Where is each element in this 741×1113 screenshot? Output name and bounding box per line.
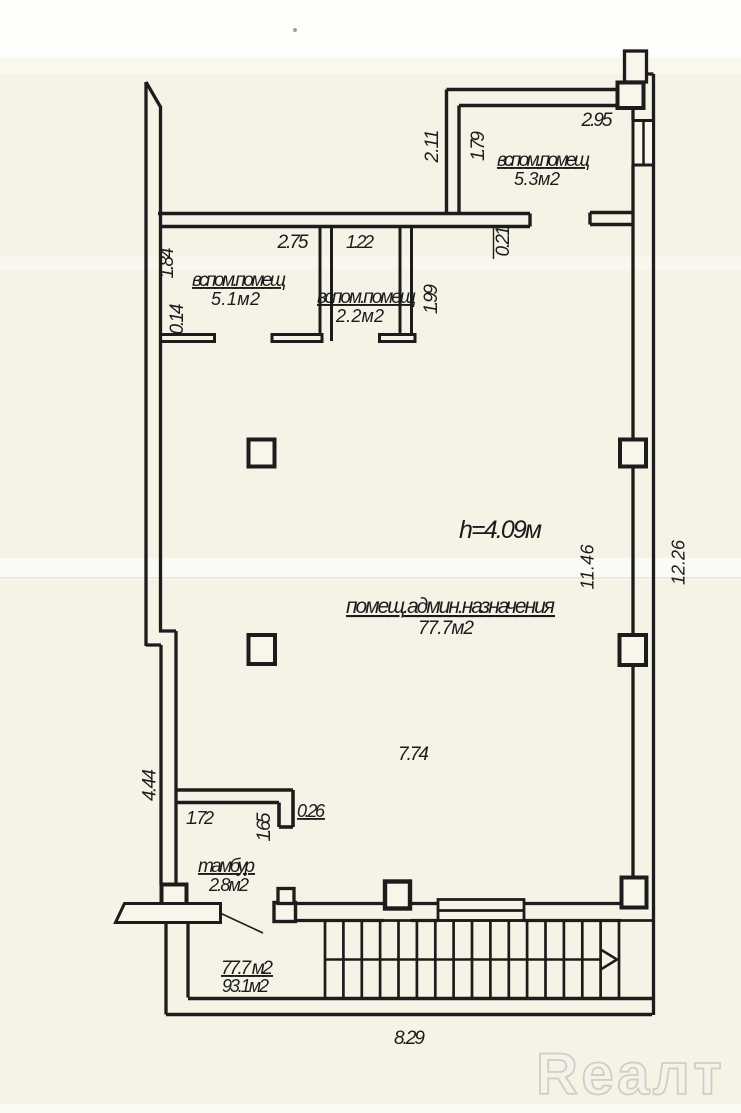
svg-text:помещ.админ.назначения: помещ.админ.назначения <box>346 595 555 618</box>
svg-text:Reaлт: Reaлт <box>536 1042 725 1107</box>
svg-text:1.65: 1.65 <box>254 812 275 841</box>
svg-text:8.29: 8.29 <box>394 1028 425 1049</box>
svg-text:7.74: 7.74 <box>398 744 429 765</box>
svg-text:5.3м2: 5.3м2 <box>514 169 560 189</box>
svg-text:11.46: 11.46 <box>578 544 598 590</box>
svg-text:0.26: 0.26 <box>297 801 326 821</box>
svg-text:1.84: 1.84 <box>157 248 178 279</box>
svg-text:12.26: 12.26 <box>669 539 689 585</box>
svg-text:1.99: 1.99 <box>421 284 442 314</box>
svg-text:2.2м2: 2.2м2 <box>335 306 384 326</box>
svg-text:вспом.помещ: вспом.помещ <box>192 270 286 291</box>
svg-text:тамбур: тамбур <box>198 856 255 877</box>
svg-text:2.75: 2.75 <box>277 232 309 253</box>
svg-text:1.72: 1.72 <box>186 808 214 828</box>
svg-text:1.22: 1.22 <box>346 232 374 252</box>
svg-text:5.1м2: 5.1м2 <box>211 289 260 309</box>
svg-text:4.44: 4.44 <box>140 769 161 801</box>
svg-text:2.8м2: 2.8м2 <box>208 875 249 895</box>
svg-text:h=4.09м: h=4.09м <box>459 516 542 544</box>
svg-text:2.95: 2.95 <box>581 110 613 131</box>
svg-text:вспом.помещ: вспом.помещ <box>317 287 416 308</box>
svg-text:93.1м2: 93.1м2 <box>222 976 269 996</box>
svg-text:вспом.помещ: вспом.помещ <box>497 150 590 171</box>
svg-text:2.11: 2.11 <box>422 130 443 164</box>
svg-text:77.7м2: 77.7м2 <box>418 618 474 639</box>
svg-text:0.21: 0.21 <box>493 226 514 257</box>
svg-text:0.14: 0.14 <box>167 304 188 335</box>
svg-text:1.79: 1.79 <box>468 131 489 161</box>
